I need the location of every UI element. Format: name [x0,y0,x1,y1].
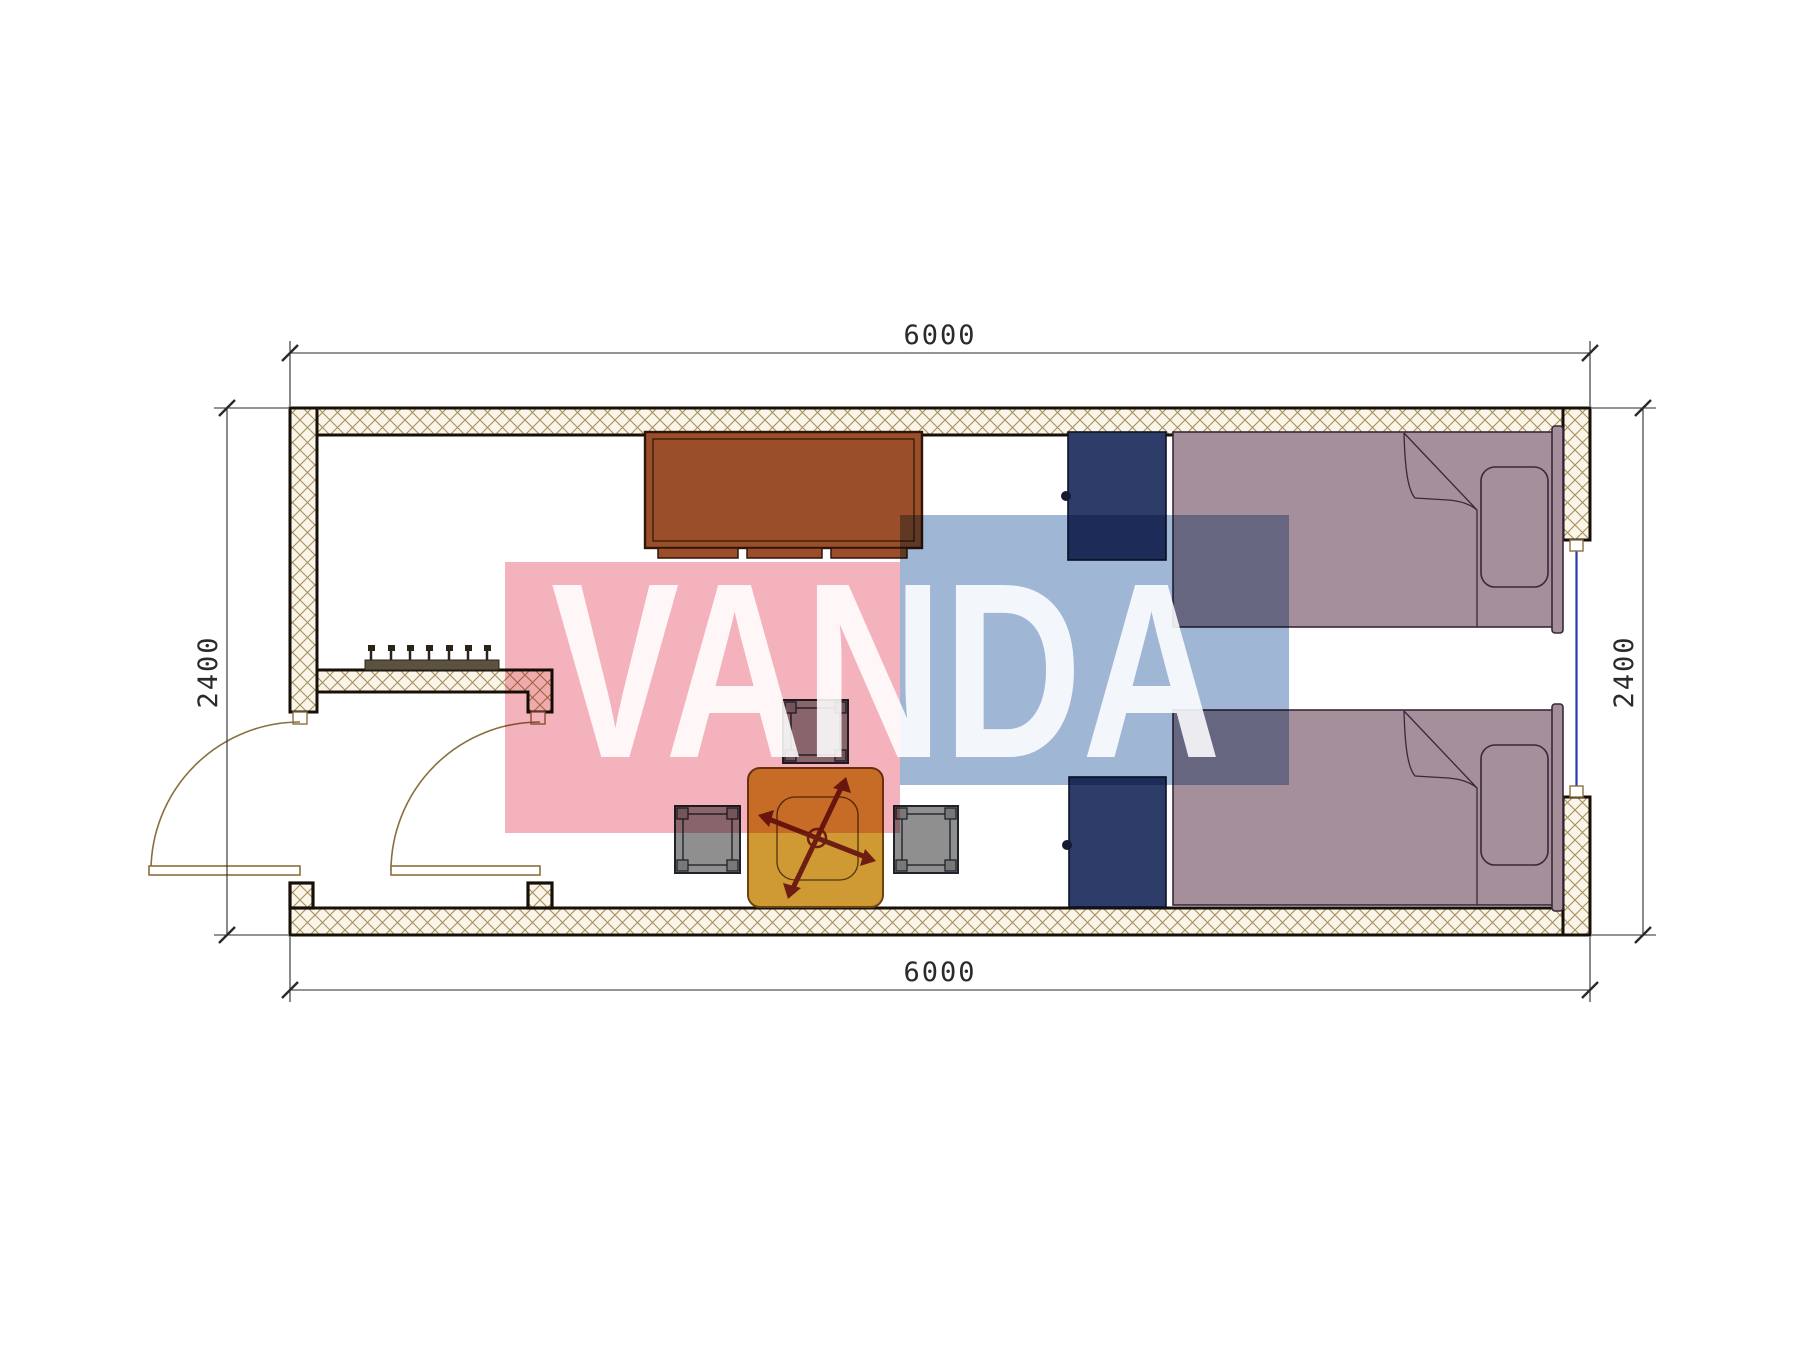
dimension-left: 2400 [193,400,288,943]
dim-bottom-label: 6000 [903,957,976,988]
wardrobe-handle [1062,840,1072,850]
floor-plan-canvas: 6000 6000 2400 2400 VANDA [0,0,1800,1350]
entry-door-leaf [149,866,300,875]
pillow [1481,745,1548,865]
wall-right-upper [1563,408,1590,540]
bed-headboard [1552,704,1563,911]
stool-right [894,806,958,873]
window-right [1570,540,1583,797]
floor-plan-page: 6000 6000 2400 2400 VANDA [0,0,1800,1350]
inner-door-leaf [391,866,540,875]
wall-top [290,408,1590,435]
wall-left [290,408,317,712]
wall-bottom [290,908,1590,935]
wall-right-lower [1563,797,1590,935]
coat-rack-hooks [368,645,491,660]
dim-top-label: 6000 [903,320,976,351]
dim-right-label: 2400 [1609,635,1640,708]
dimension-top: 6000 [282,320,1598,406]
dimension-right: 2400 [1592,400,1656,943]
entry-door-swing-arc [151,722,300,871]
dimension-bottom: 6000 [282,937,1598,1002]
door-jamb-pillar-mid [528,883,552,908]
entry-door [149,712,307,875]
coat-rack-bar [365,660,499,670]
wardrobe-handle [1061,491,1071,501]
door-jamb-pillar-left [290,883,313,908]
window-frame-top [1570,540,1583,551]
dim-left-label: 2400 [193,635,224,708]
bed-headboard [1552,426,1563,633]
window-frame-bottom [1570,786,1583,797]
pillow [1481,467,1548,587]
coat-rack [365,645,499,670]
watermark-text: VANDA [551,531,1221,810]
watermark: VANDA [505,515,1289,833]
